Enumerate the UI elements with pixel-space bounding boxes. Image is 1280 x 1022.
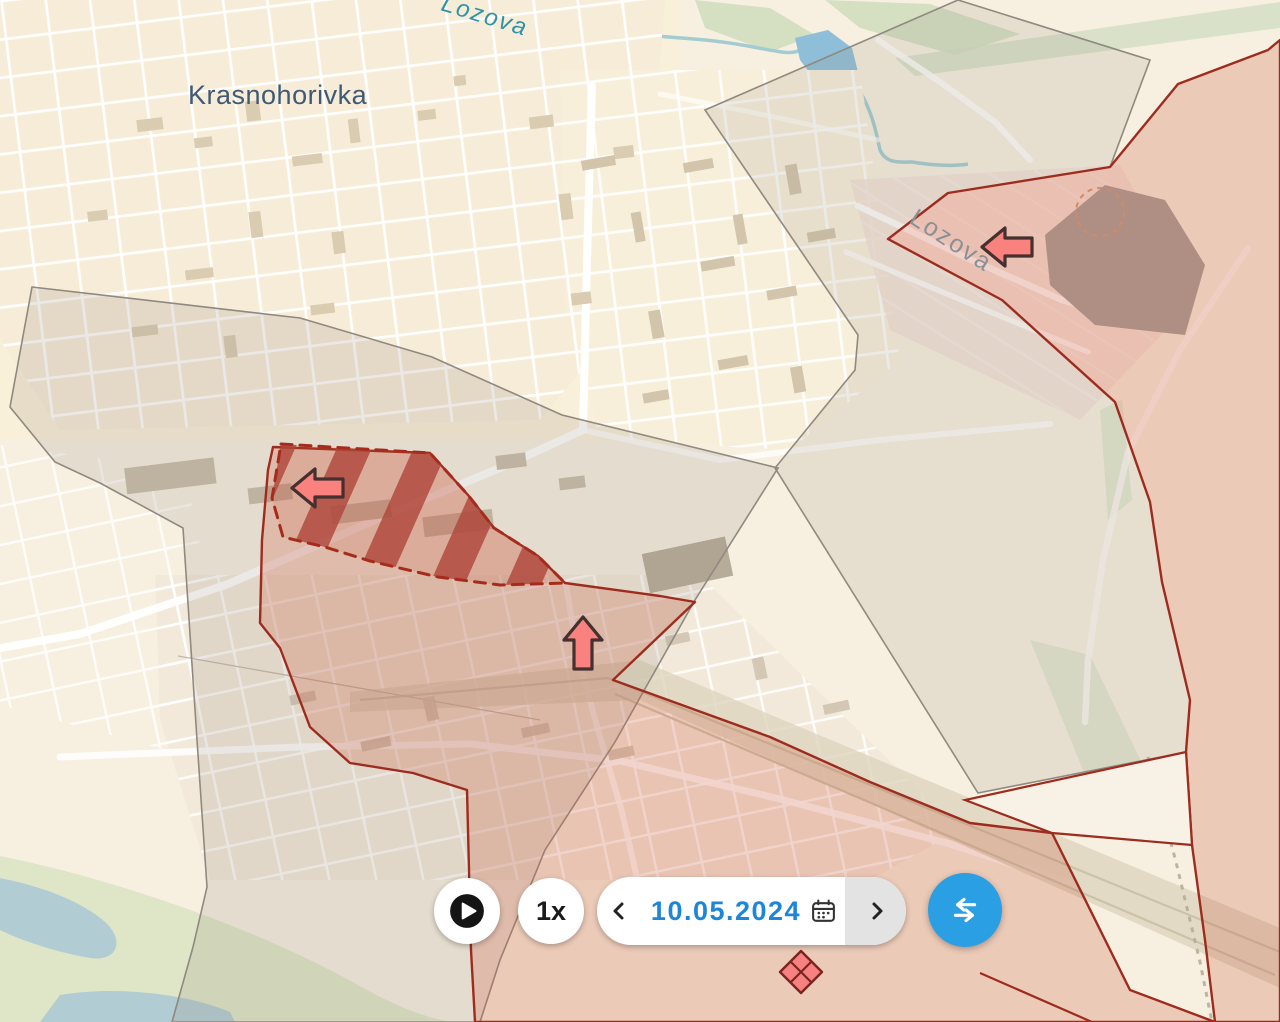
date-value: 10.05.2024 — [651, 896, 801, 927]
date-picker: 10.05.2024 — [597, 877, 906, 945]
date-display[interactable]: 10.05.2024 — [643, 896, 845, 927]
calendar-icon — [810, 898, 837, 925]
chevron-left-icon — [609, 900, 631, 922]
play-button[interactable] — [434, 878, 500, 944]
map-application: Krasnohorivka Lozova Lozova 1x 10.05.202… — [0, 0, 1280, 1022]
compare-toggle-button[interactable] — [928, 873, 1002, 947]
speed-button[interactable]: 1x — [518, 878, 584, 944]
map-canvas[interactable]: Krasnohorivka Lozova Lozova — [0, 0, 1280, 1022]
chevron-right-icon — [865, 900, 887, 922]
compare-arrows-icon — [947, 892, 983, 928]
speed-label: 1x — [536, 896, 566, 927]
city-label: Krasnohorivka — [188, 80, 368, 110]
play-icon — [448, 892, 486, 930]
